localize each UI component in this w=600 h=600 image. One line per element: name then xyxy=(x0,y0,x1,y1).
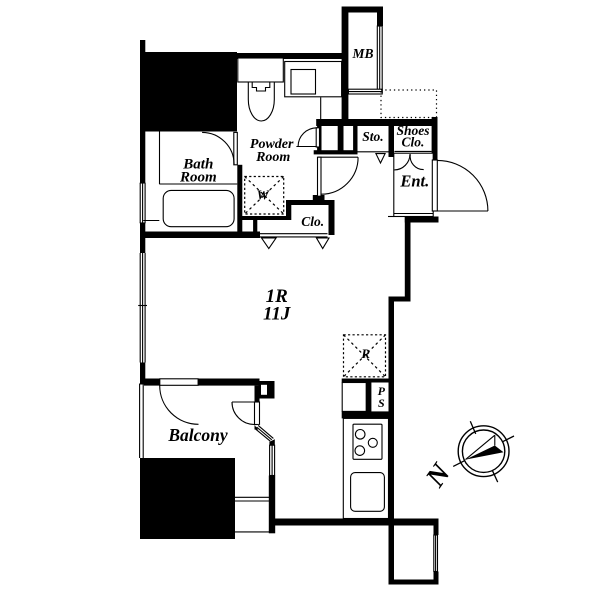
svg-text:Room: Room xyxy=(179,170,217,186)
svg-text:Sto.: Sto. xyxy=(362,129,383,144)
svg-text:MB: MB xyxy=(351,46,373,61)
svg-text:11J: 11J xyxy=(263,304,291,325)
svg-text:Room: Room xyxy=(255,150,290,165)
svg-text:Clo.: Clo. xyxy=(402,135,425,150)
svg-text:S: S xyxy=(378,396,385,410)
svg-text:Ent.: Ent. xyxy=(399,172,429,191)
svg-text:Clo.: Clo. xyxy=(301,214,324,229)
svg-text:Balcony: Balcony xyxy=(167,425,228,445)
svg-text:R: R xyxy=(360,346,370,361)
svg-text:W: W xyxy=(256,189,270,204)
